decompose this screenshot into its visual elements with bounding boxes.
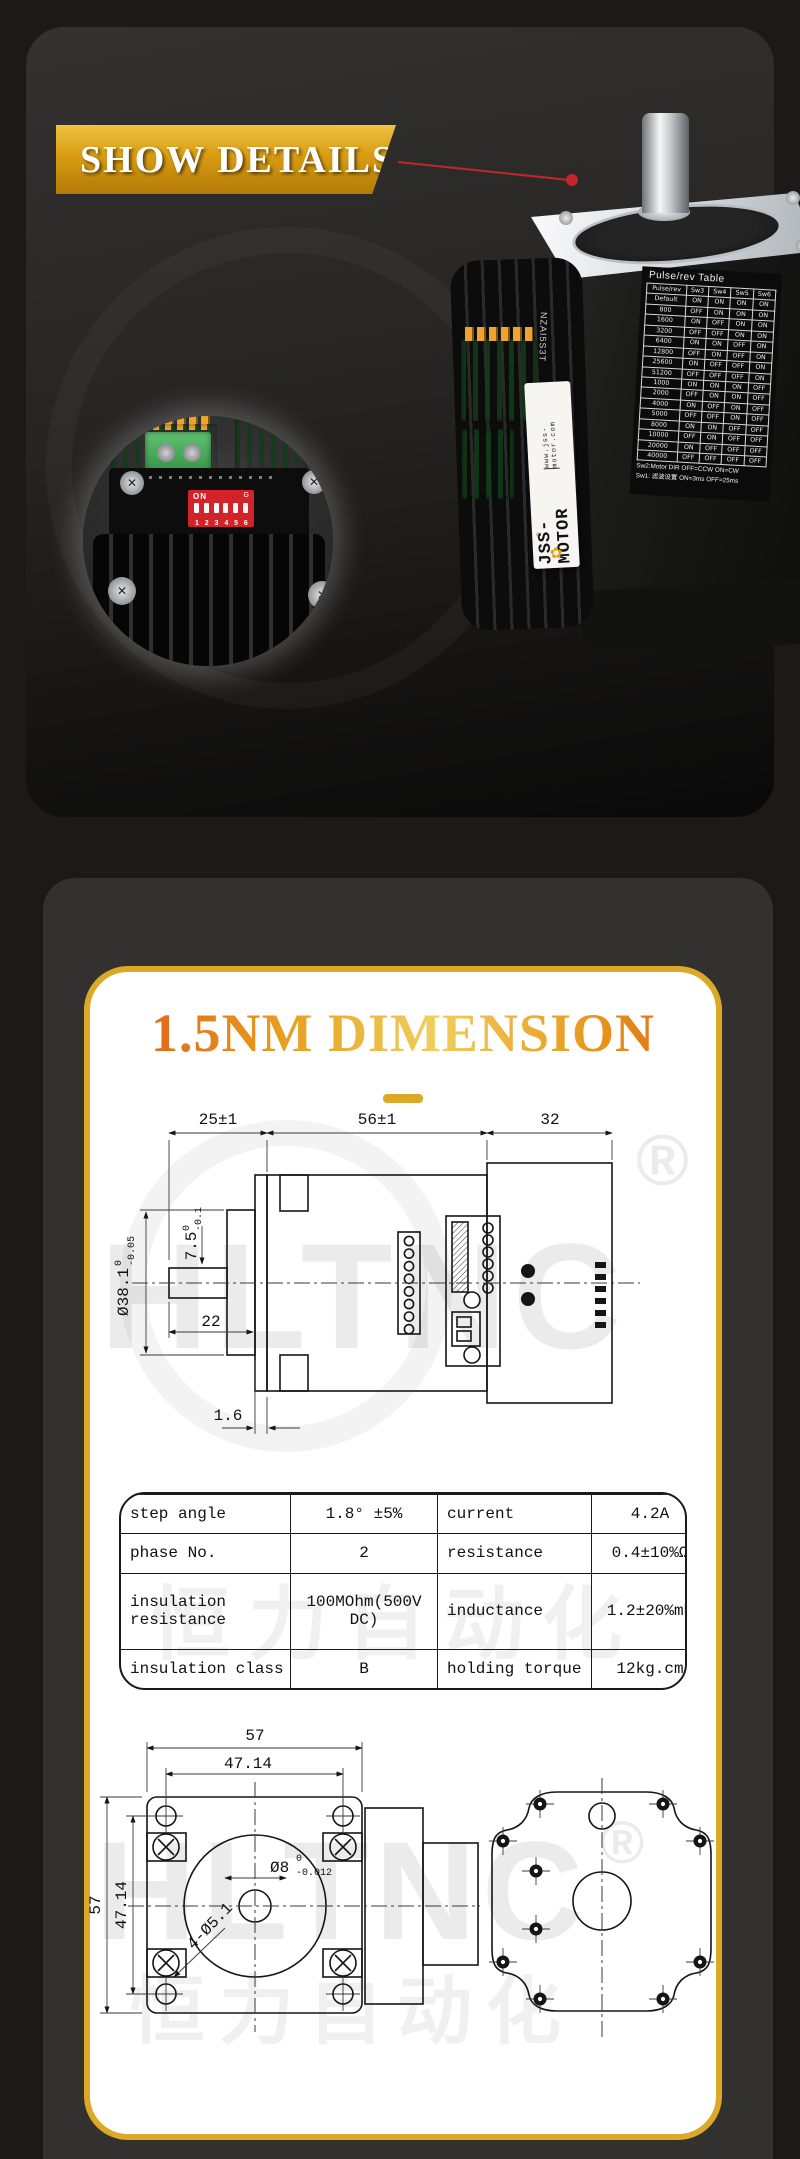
cross-screw-icon: ✕ — [108, 577, 136, 605]
registered-mark: ® — [536, 533, 541, 539]
cross-screw-icon: ✕ — [308, 581, 333, 609]
top-photo-panel: SHOW DETAILS NZAI5S3T JSS-MOTOR www.js — [26, 27, 774, 817]
flower-logo-icon: ✿ — [549, 544, 563, 563]
product-detail-page: SHOW DETAILS NZAI5S3T JSS-MOTOR www.js — [0, 0, 800, 2159]
spec-table: step angle1.8° ±5% current4.2A phase No.… — [119, 1492, 687, 1690]
terminal-pins-upper — [465, 327, 533, 341]
cross-screw-icon: ✕ — [302, 470, 326, 494]
dip-switch-4 — [223, 503, 228, 513]
motor-base — [579, 579, 800, 655]
motor-product-photo: NZAI5S3T JSS-MOTOR www.jss-motor.com ® ✿… — [441, 87, 800, 667]
dip-switch-6 — [243, 503, 248, 513]
watermark-ring — [120, 1120, 452, 1452]
dip-switch-3 — [214, 503, 219, 513]
jss-url-text: www.jss-motor.com — [539, 386, 559, 469]
watermark-cn-2: 恒力自动化 — [130, 1950, 575, 2059]
pulse-table: Pulse/rev Sw3 Sw4 Sw5 Sw6 DefaultONONONO… — [637, 283, 777, 468]
terminal-screw — [157, 444, 175, 462]
spec-table-row: step angle1.8° ±5% current4.2A — [121, 1495, 687, 1534]
pulse-table-body: DefaultONONONON 800OFFONONON 1600ONOFFON… — [637, 293, 775, 467]
plate-screw — [786, 191, 800, 205]
dip-switch-5 — [233, 503, 238, 513]
cross-screw-icon: ✕ — [120, 471, 144, 495]
driver-emboss-text: NZAI5S3T — [537, 312, 549, 362]
show-details-banner: SHOW DETAILS — [56, 125, 396, 194]
dip-switch-1 — [194, 503, 199, 513]
inset-silkscreen-marks — [139, 476, 279, 479]
terminal-block-lower — [462, 429, 514, 499]
dip-switch-2 — [204, 503, 209, 513]
title-underline-dash — [383, 1094, 423, 1103]
spec-table-row: insulation classB holding torque12kg.cm — [121, 1650, 687, 1688]
spec-table-body: step angle1.8° ±5% current4.2A phase No.… — [121, 1495, 687, 1689]
pulse-rev-table-label: Pulse/rev Table Pulse/rev Sw3 Sw4 Sw5 Sw… — [630, 266, 783, 501]
dip-switch-zoom-inset: ✕ ✕ ✕ ✕ ON G 123456 — [83, 416, 333, 666]
dip-switch-block: ON G 123456 — [188, 490, 254, 527]
dip-numbers: 123456 — [192, 520, 251, 527]
terminal-screw — [183, 444, 201, 462]
plate-screw — [559, 211, 573, 225]
section-title: 1.5NM DIMENSION — [84, 1002, 722, 1064]
dip-on-label: ON — [193, 492, 207, 501]
jss-motor-label: JSS-MOTOR www.jss-motor.com ® ✿ — [524, 381, 580, 569]
show-details-label: SHOW DETAILS — [56, 138, 395, 182]
motor-shaft — [642, 113, 689, 213]
spec-table-row: insulation resistance100MOhm(500V DC) in… — [121, 1573, 687, 1650]
spec-table-row: phase No.2 resistance0.4±10%Ω — [121, 1534, 687, 1573]
dip-brand-mark: G — [244, 492, 249, 499]
